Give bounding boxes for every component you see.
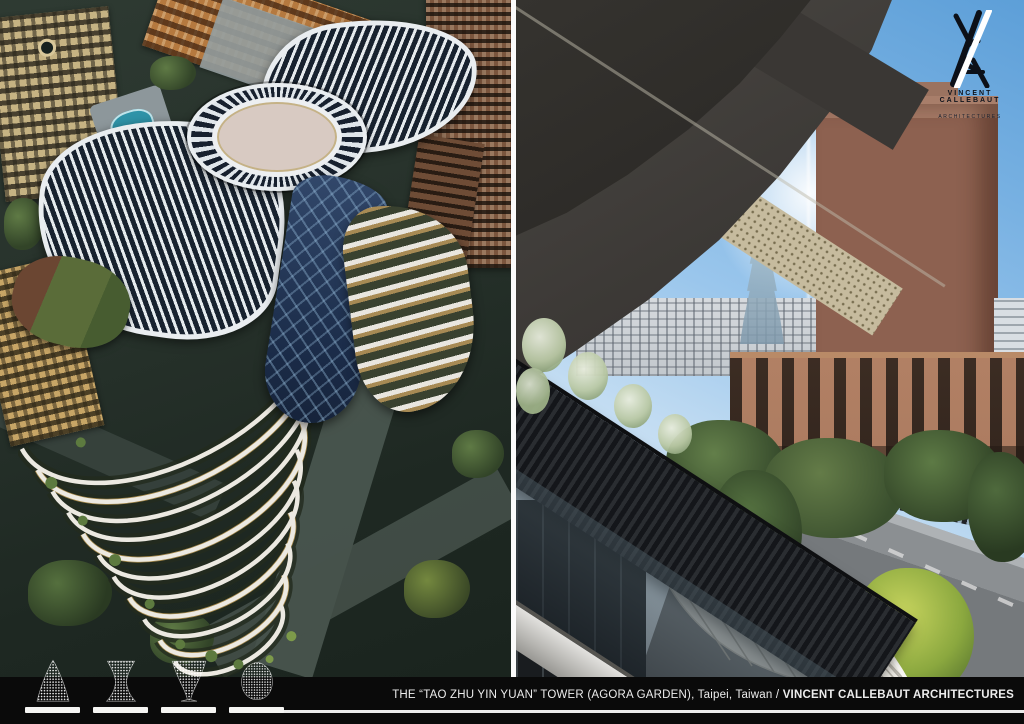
roof-medallion [37, 38, 57, 58]
massing-hourglass-icon [93, 655, 148, 713]
monogram-text: VCA [970, 88, 971, 89]
tree [150, 56, 196, 90]
railing-plant [522, 318, 566, 372]
massing-ovoid-icon [229, 655, 284, 713]
diagram-base [229, 707, 284, 713]
diagram-base [161, 707, 216, 713]
panel-divider [511, 0, 516, 677]
helipad [212, 97, 342, 177]
logo-name-line1: VINCENT [926, 90, 1014, 97]
presentation-page: VCA VINCENT CALLEBAUT ARCHITECTURES [0, 0, 1024, 724]
caption-text: THE “TAO ZHU YIN YUAN” TOWER (AGORA GARD… [392, 688, 1014, 702]
railing-plant [658, 414, 692, 454]
photo-aerial-tower [0, 0, 512, 724]
diagram-base [25, 707, 80, 713]
railing-plant [614, 384, 652, 428]
logo-subtitle: ARCHITECTURES [926, 114, 1014, 120]
tower-cascading-balconies [18, 352, 438, 682]
massing-cone-icon [25, 655, 80, 713]
tree [968, 452, 1024, 562]
caption-project: THE “TAO ZHU YIN YUAN” TOWER (AGORA GARD… [392, 689, 783, 701]
caption-underline [282, 710, 1024, 713]
massing-chalice-icon [161, 655, 216, 713]
caption-firm: VINCENT CALLEBAUT ARCHITECTURES [783, 689, 1014, 701]
caption-bar: THE “TAO ZHU YIN YUAN” TOWER (AGORA GARD… [0, 677, 1024, 724]
vca-logo: VCA VINCENT CALLEBAUT ARCHITECTURES [926, 10, 1014, 120]
logo-name-line2: CALLEBAUT [926, 97, 1014, 104]
railing-plant [568, 352, 608, 400]
massing-diagrams [25, 655, 284, 713]
diagram-base [93, 707, 148, 713]
vca-monogram-icon [943, 10, 997, 88]
railing-plant [516, 368, 550, 414]
